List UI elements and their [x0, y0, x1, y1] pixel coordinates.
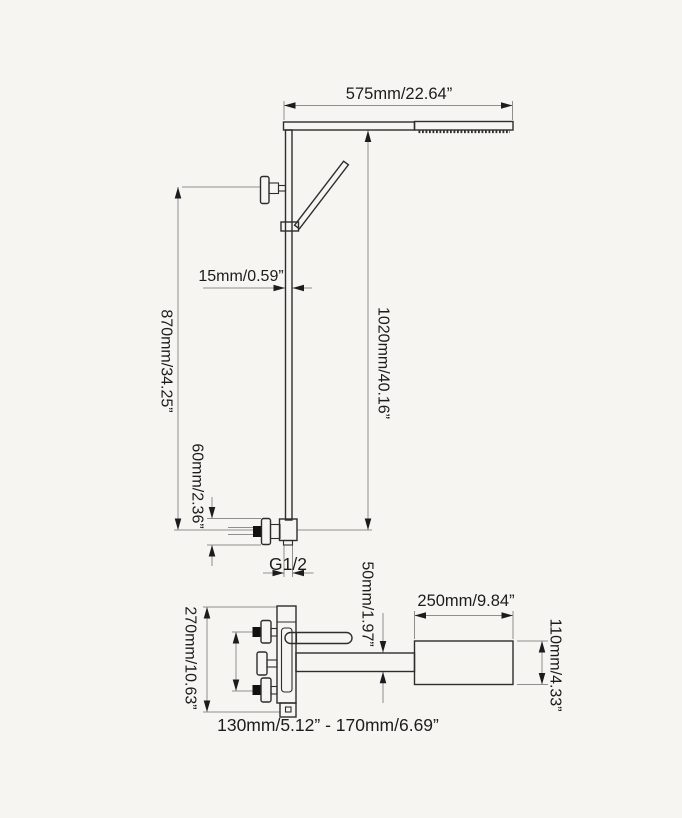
- valve-foot-hole: [286, 707, 292, 712]
- shower-head: [415, 122, 514, 131]
- dim-label-head-width: 110mm/4.33”: [547, 618, 564, 711]
- knob-bottom-stem: [253, 685, 262, 695]
- knob-top-stem: [253, 627, 262, 637]
- dim-label-bracket-height: 870mm/34.25”: [158, 309, 175, 412]
- dim-label-pipe-width: 15mm/0.59”: [198, 268, 283, 285]
- dim-label-thread-size: G1/2: [269, 554, 307, 574]
- riser-pipe: [286, 130, 293, 520]
- valve-inner-bar: [282, 628, 293, 692]
- lower-view: 50mm/1.97” 250mm/9.84” 270mm/10.63” 110m…: [182, 561, 564, 735]
- wall-union-stem: [253, 526, 262, 537]
- wall-bracket-flange: [261, 177, 270, 204]
- dim-label-column-height: 1020mm/40.16”: [375, 307, 392, 419]
- knob-middle-link: [267, 660, 277, 667]
- spout-head: [415, 641, 514, 685]
- knob-bottom-flange: [261, 678, 271, 702]
- knob-top-link: [271, 629, 277, 637]
- wall-union-nut: [271, 525, 281, 539]
- dim-label-spout-thickness: 50mm/1.97”: [359, 561, 376, 646]
- wall-union-block: [280, 519, 298, 541]
- dim-label-body-height: 270mm/10.63”: [182, 606, 199, 709]
- wall-union-flange: [262, 519, 271, 545]
- dim-label-head-length: 250mm/9.84”: [417, 592, 514, 610]
- hand-shower-wand: [295, 161, 349, 229]
- wall-bracket-stem: [269, 183, 279, 194]
- technical-drawing: 575mm/22.64” 15mm/0.59” 870mm/34.25” 102…: [0, 0, 682, 818]
- dim-label-union-size: 60mm/2.36”: [189, 443, 206, 528]
- dim-label-inlet-spacing: 130mm/5.12” - 170mm/6.69”: [217, 715, 439, 735]
- knob-top-flange: [261, 621, 271, 644]
- valve-plate: [277, 606, 296, 703]
- shower-arm: [284, 122, 415, 130]
- knob-bottom-link: [271, 687, 277, 695]
- mixer-handle-lever: [285, 633, 352, 644]
- wall-bracket-link: [279, 186, 286, 192]
- dim-label-arm-length: 575mm/22.64”: [346, 85, 452, 103]
- upper-view: 575mm/22.64” 15mm/0.59” 870mm/34.25” 102…: [158, 85, 514, 577]
- knob-middle-flange: [257, 652, 267, 675]
- spout-arm: [296, 653, 415, 672]
